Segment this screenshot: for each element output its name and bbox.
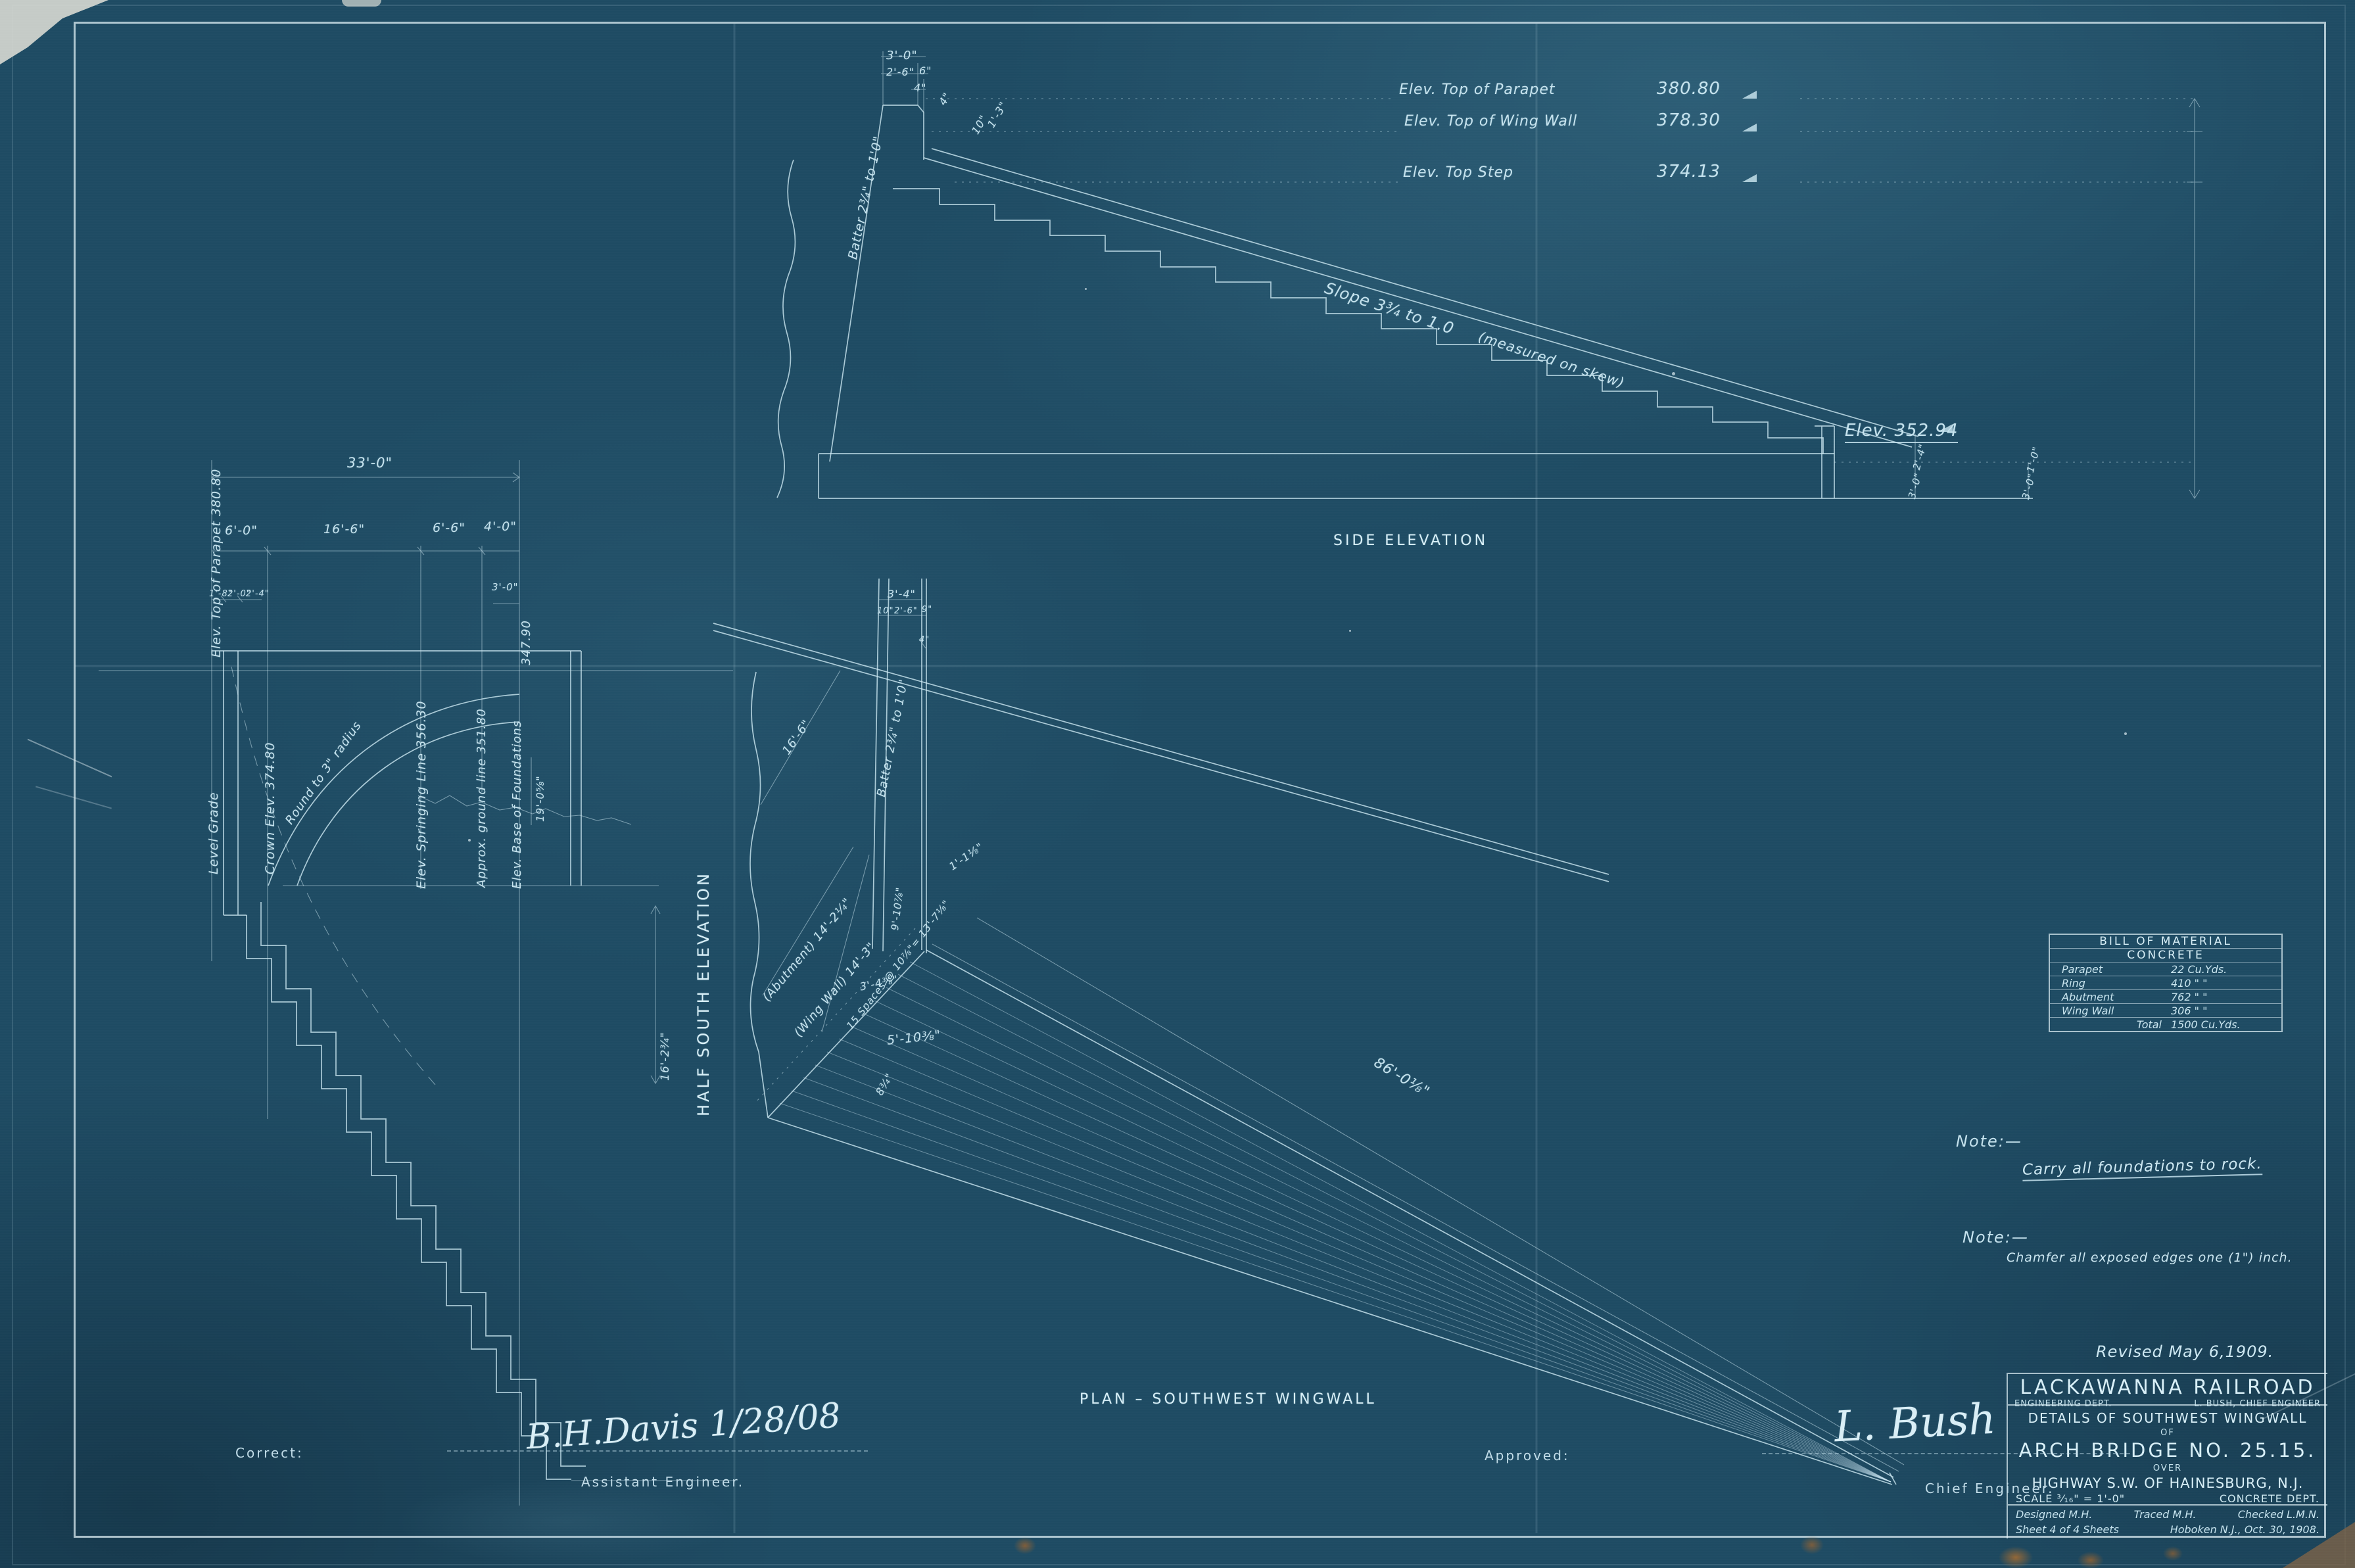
title-block: LACKAWANNA RAILROAD ENGINEERING DEPT. L.… bbox=[2007, 1373, 2327, 1538]
batter-note-plan: Batter 2¾" to 1'0" bbox=[874, 678, 911, 798]
ref-label-top-step: Elev. Top Step bbox=[1403, 164, 1513, 181]
dim-parapet-6in: 6" bbox=[919, 64, 932, 77]
dim-4-0: 4'-0" bbox=[484, 519, 517, 534]
table-row: Abutment 762 " " bbox=[2050, 990, 2281, 1004]
springing-line-vertical: Elev. Springing Line 356.30 bbox=[414, 700, 429, 889]
ref-value-top-of-parapet: 380.80 bbox=[1657, 79, 1721, 99]
dim-parapet-2-6: 2'-6" bbox=[886, 66, 915, 78]
dim-16-6: 16'-6" bbox=[323, 522, 365, 536]
table-row: Parapet 22 Cu.Yds. bbox=[2050, 962, 2281, 976]
bom-qty: 22 Cu.Yds. bbox=[2171, 963, 2281, 976]
bom-item: Wing Wall bbox=[2050, 1005, 2171, 1017]
signature-line bbox=[1762, 1453, 2130, 1454]
checked-by: Checked L.M.N. bbox=[2238, 1508, 2319, 1521]
dim-plan-4in: 4" bbox=[919, 635, 930, 645]
ref-label-top-of-parapet: Elev. Top of Parapet bbox=[1399, 82, 1556, 98]
bill-of-material-table: BILL OF MATERIAL CONCRETE Parapet 22 Cu.… bbox=[2049, 934, 2283, 1032]
chief-engineer: L. BUSH, CHIEF ENGINEER bbox=[2194, 1399, 2321, 1409]
slope-note: Slope 3¾ to 1.0 bbox=[1322, 279, 1456, 338]
ref-label-top-of-wing-wall: Elev. Top of Wing Wall bbox=[1404, 113, 1577, 130]
approved-label: Approved: bbox=[1485, 1448, 1570, 1463]
dim-86-0: 86'-0⅛" bbox=[1371, 1055, 1433, 1101]
note-label: Note:— bbox=[1963, 1228, 2029, 1247]
approved-signature: L. Bush bbox=[1833, 1395, 1997, 1452]
plan-title: PLAN – SOUTHWEST WINGWALL bbox=[1080, 1391, 1377, 1408]
dim-3-0-right: 3'-0" bbox=[492, 581, 519, 593]
base-elevation: Elev. 352.94 bbox=[1845, 421, 1958, 443]
ground-line-vertical: Approx. ground line 351.80 bbox=[475, 708, 488, 888]
dim-6-0: 6'-0" bbox=[225, 523, 258, 538]
dim-step-4in: 4" bbox=[936, 90, 953, 107]
department: ENGINEERING DEPT. bbox=[2014, 1399, 2112, 1409]
correct-label: Correct: bbox=[235, 1445, 304, 1461]
crown-elev-vertical: Crown Elev. 374.80 bbox=[263, 742, 277, 874]
correct-title: Assistant Engineer. bbox=[581, 1474, 744, 1490]
company-name: LACKAWANNA RAILROAD bbox=[2008, 1374, 2327, 1399]
bom-qty: 762 " " bbox=[2171, 991, 2281, 1003]
side-elevation-title: SIDE ELEVATION bbox=[1333, 533, 1488, 549]
bom-item: Parapet bbox=[2050, 963, 2171, 976]
bom-total-label: Total bbox=[2050, 1018, 2171, 1031]
dim-19-0: 19'-0⅝" bbox=[534, 775, 546, 822]
bom-title: BILL OF MATERIAL bbox=[2050, 935, 2281, 949]
slope-note-skew: (measured on skew) bbox=[1477, 329, 1627, 391]
bom-total-qty: 1500 Cu.Yds. bbox=[2171, 1018, 2281, 1031]
bom-qty: 306 " " bbox=[2171, 1005, 2281, 1017]
dim-33-0: 33'-0" bbox=[347, 455, 393, 471]
dim-plan-16-6: 16'-6" bbox=[780, 717, 814, 757]
dim-5-10: 5'-10⅜" bbox=[886, 1028, 941, 1048]
dim-16-2: 16'-2¾" bbox=[659, 1032, 672, 1081]
batter-note-side: Batter 2¾" to 1'0" bbox=[845, 135, 886, 261]
dim-step-1-3: 1'-3" bbox=[985, 99, 1010, 130]
dim-parapet-3-0: 3'-0" bbox=[886, 49, 918, 62]
note-label: Note:— bbox=[1956, 1132, 2022, 1151]
dim-plan-10in: 10" bbox=[877, 606, 894, 616]
round-radius-note: Round to 3" radius bbox=[283, 719, 364, 827]
dim-base-1-0: 1'-0" bbox=[2024, 445, 2043, 474]
title-block-header: LACKAWANNA RAILROAD ENGINEERING DEPT. L.… bbox=[2008, 1374, 2327, 1406]
traced-by: Traced M.H. bbox=[2134, 1508, 2197, 1521]
dim-6-6: 6'-6" bbox=[433, 521, 465, 535]
revision-note: Revised May 6,1909. bbox=[2096, 1342, 2273, 1361]
bridge-number: ARCH BRIDGE NO. 25.15. bbox=[2008, 1439, 2327, 1461]
dim-base-3-0b: 3'-0" bbox=[2020, 472, 2038, 501]
half-south-elevation-title: HALF SOUTH ELEVATION bbox=[694, 871, 713, 1116]
dim-plan-3-4: 3'-4" bbox=[888, 588, 916, 600]
bom-qty: 410 " " bbox=[2171, 977, 2281, 989]
base-foundations-vertical: Elev. Base of Foundations bbox=[510, 721, 524, 889]
place-date: Hoboken N.J., Oct. 30, 1908. bbox=[2170, 1523, 2319, 1536]
concrete-dept: CONCRETE DEPT. bbox=[2220, 1492, 2319, 1505]
dim-9-10: 9'-10⅞" bbox=[889, 886, 906, 931]
level-grade-vertical: Level Grade bbox=[206, 792, 221, 874]
bom-material: CONCRETE bbox=[2050, 949, 2281, 962]
annotation-layer: SIDE ELEVATIONPLAN – SOUTHWEST WINGWALLH… bbox=[0, 0, 2355, 1568]
dim-plan-2-6: 2'-6" bbox=[894, 606, 918, 616]
elev-347-90: 347.90 bbox=[519, 620, 533, 665]
table-row: Wing Wall 306 " " bbox=[2050, 1004, 2281, 1018]
blueprint-sheet: SIDE ELEVATIONPLAN – SOUTHWEST WINGWALLH… bbox=[0, 0, 2355, 1568]
location: HIGHWAY S.W. OF HAINESBURG, N.J. bbox=[2008, 1475, 2327, 1491]
note-text: Chamfer all exposed edges one (1") inch. bbox=[2007, 1250, 2293, 1265]
bom-item: Ring bbox=[2050, 977, 2171, 989]
dim-base-2-4: 2'-4" bbox=[1911, 442, 1929, 471]
approved-title: Chief Engineer. bbox=[1925, 1481, 2055, 1496]
ref-value-top-step: 374.13 bbox=[1657, 162, 1721, 181]
signature-line bbox=[447, 1450, 868, 1452]
title-block-subject: DETAILS OF SOUTHWEST WINGWALL OF ARCH BR… bbox=[2008, 1410, 2327, 1506]
drawing-subject: DETAILS OF SOUTHWEST WINGWALL bbox=[2008, 1410, 2327, 1426]
dim-parapet-4in: 4" bbox=[914, 82, 927, 94]
over-label: OVER bbox=[2008, 1463, 2327, 1473]
designed-by: Designed M.H. bbox=[2016, 1508, 2092, 1521]
dim-2-4: 2'-4" bbox=[246, 589, 270, 599]
dim-base-3-0: 3'-0" bbox=[1906, 471, 1924, 500]
sheet-number: Sheet 4 of 4 Sheets bbox=[2016, 1523, 2119, 1536]
dim-8-34: 8¾" bbox=[873, 1071, 895, 1098]
elev-top-parapet-vertical: Elev. Top of Parapet 380.80 bbox=[209, 469, 224, 657]
table-row-total: Total 1500 Cu.Yds. bbox=[2050, 1018, 2281, 1031]
table-row: Ring 410 " " bbox=[2050, 976, 2281, 990]
dim-1-1: 1'-1⅛" bbox=[947, 840, 986, 873]
title-block-credits: Designed M.H. Traced M.H. Checked L.M.N.… bbox=[2008, 1506, 2327, 1543]
ref-value-top-of-wing-wall: 378.30 bbox=[1657, 110, 1721, 130]
of-label: OF bbox=[2008, 1428, 2327, 1438]
bom-item: Abutment bbox=[2050, 991, 2171, 1003]
dim-plan-9in: 9" bbox=[922, 605, 932, 615]
